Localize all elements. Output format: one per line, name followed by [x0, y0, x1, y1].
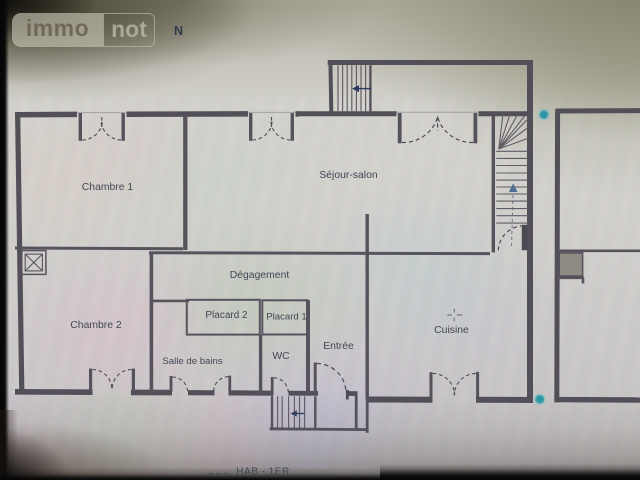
svg-text:Séjour-salon: Séjour-salon	[319, 170, 378, 181]
svg-text:Entrée: Entrée	[323, 341, 354, 352]
svg-text:Chambre 1: Chambre 1	[82, 182, 134, 193]
svg-text:Cuisine: Cuisine	[434, 325, 469, 336]
svg-text:WC: WC	[272, 351, 290, 362]
svg-text:Placard 1: Placard 1	[266, 312, 307, 323]
svg-text:Salle de bains: Salle de bains	[162, 356, 222, 367]
svg-text:Placard 2: Placard 2	[205, 310, 248, 321]
svg-text:Dégagement: Dégagement	[230, 270, 290, 281]
svg-text:Chambre 2: Chambre 2	[70, 320, 122, 331]
svg-text:HAB - 1ER: HAB - 1ER	[236, 467, 289, 478]
